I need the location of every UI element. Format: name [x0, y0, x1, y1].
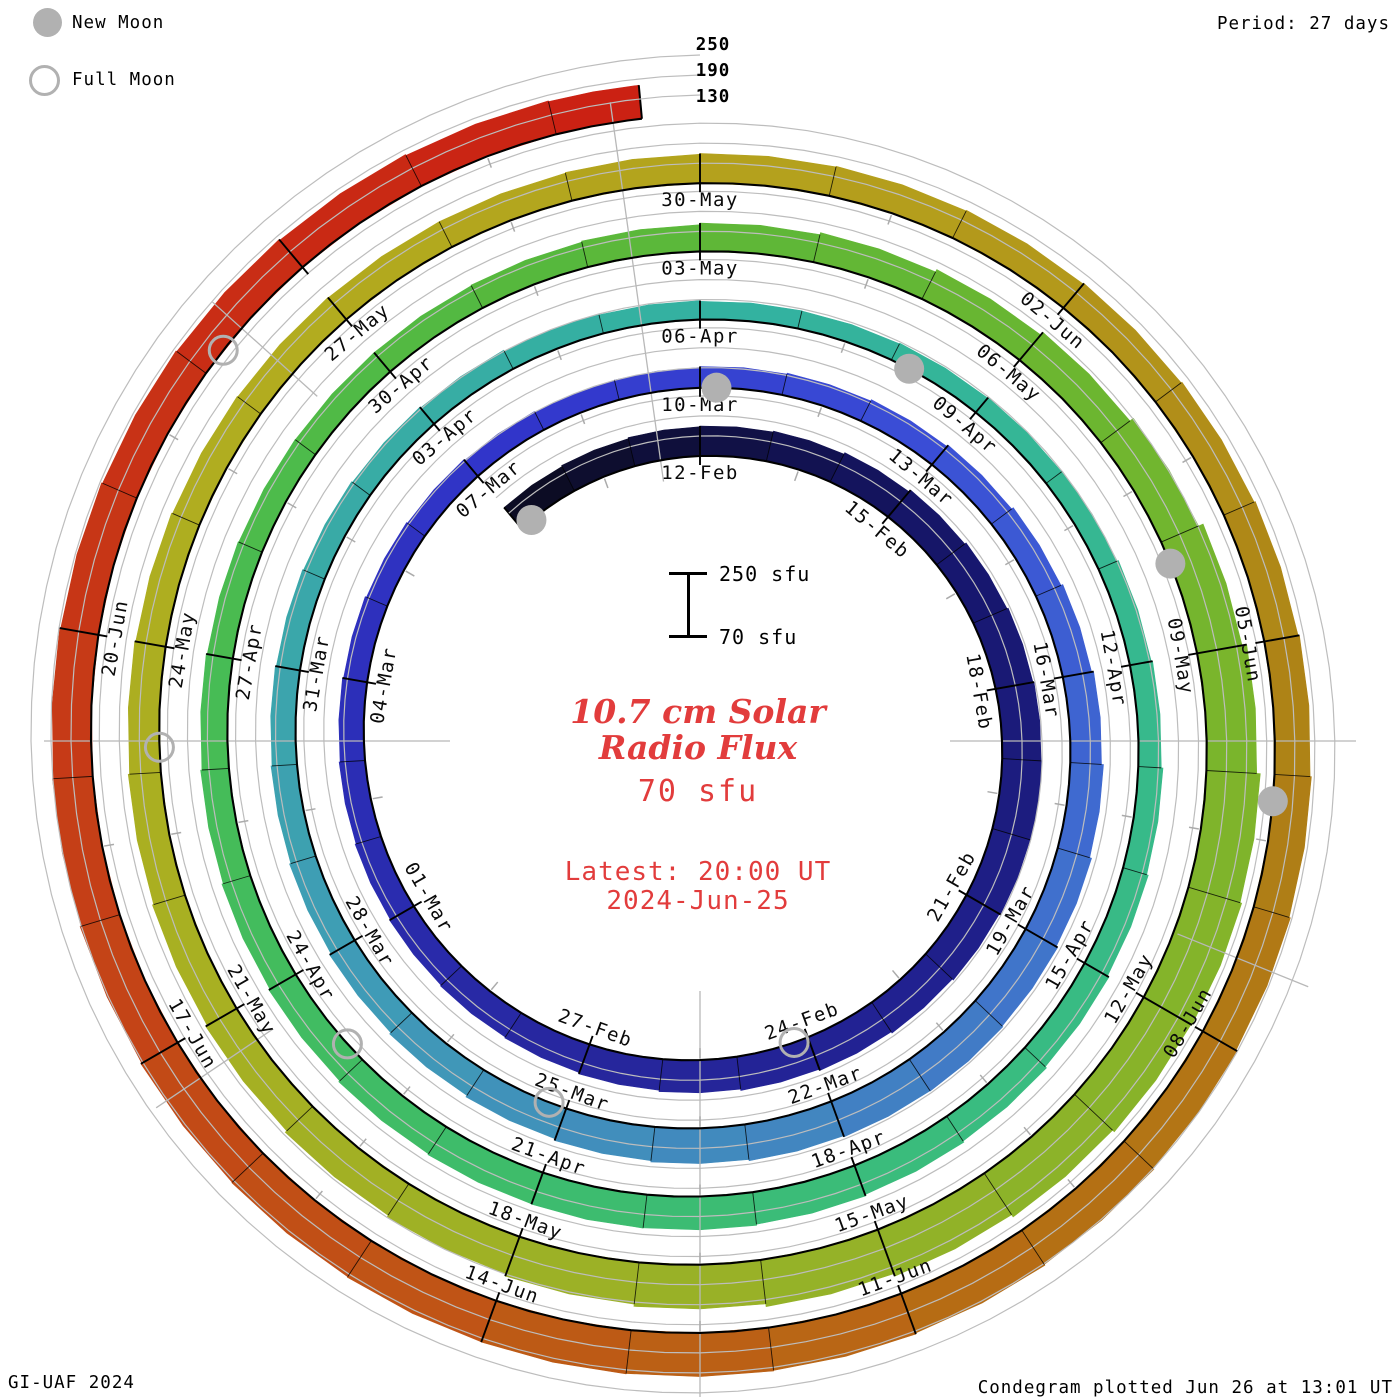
scale-bar-stem: [687, 572, 690, 638]
radial-axis-label-190: 190: [696, 61, 731, 81]
scale-bar-bottom-label: 70 sfu: [719, 625, 797, 649]
full-moon-icon: [29, 65, 60, 96]
credit-label: GI-UAF 2024: [8, 1373, 135, 1393]
period-label: Period: 27 days: [1217, 14, 1390, 34]
date-tick-label: 12-Feb: [661, 462, 739, 484]
scale-bar-bottom-cap: [669, 635, 707, 638]
new-moon-marker: [516, 505, 546, 535]
radial-axis-label-250: 250: [696, 35, 731, 55]
new-moon-marker: [1155, 549, 1185, 579]
chart-title-line1: 10.7 cm Solar: [448, 694, 948, 730]
date-tick-label: 30-May: [661, 189, 739, 211]
latest-date-label: 2024-Jun-25: [398, 887, 998, 916]
scale-bar-top-cap: [669, 572, 707, 575]
scale-bar-top-label: 250 sfu: [719, 562, 810, 586]
date-tick-label: 03-May: [661, 257, 739, 279]
latest-reading: Latest: 20:00 UT 2024-Jun-25: [398, 858, 998, 916]
baseline-flux-label: 70 sfu: [448, 774, 948, 809]
new-moon-marker: [894, 354, 924, 384]
plotted-label: Condegram plotted Jun 26 at 13:01 UT: [978, 1378, 1393, 1398]
new-moon-label: New Moon: [72, 13, 164, 33]
new-moon-icon: [33, 8, 62, 37]
new-moon-marker: [1258, 786, 1288, 816]
date-tick-label: 06-Apr: [661, 326, 739, 348]
latest-time-label: Latest: 20:00 UT: [398, 858, 998, 887]
chart-title-line2: Radio Flux: [448, 730, 948, 766]
chart-title: 10.7 cm Solar Radio Flux: [448, 694, 948, 766]
radial-axis-label-130: 130: [696, 87, 731, 107]
condegram-page: 12-Feb15-Feb18-Feb21-Feb24-Feb27-Feb01-M…: [0, 0, 1400, 1400]
new-moon-marker: [701, 373, 731, 403]
full-moon-label: Full Moon: [72, 70, 176, 90]
